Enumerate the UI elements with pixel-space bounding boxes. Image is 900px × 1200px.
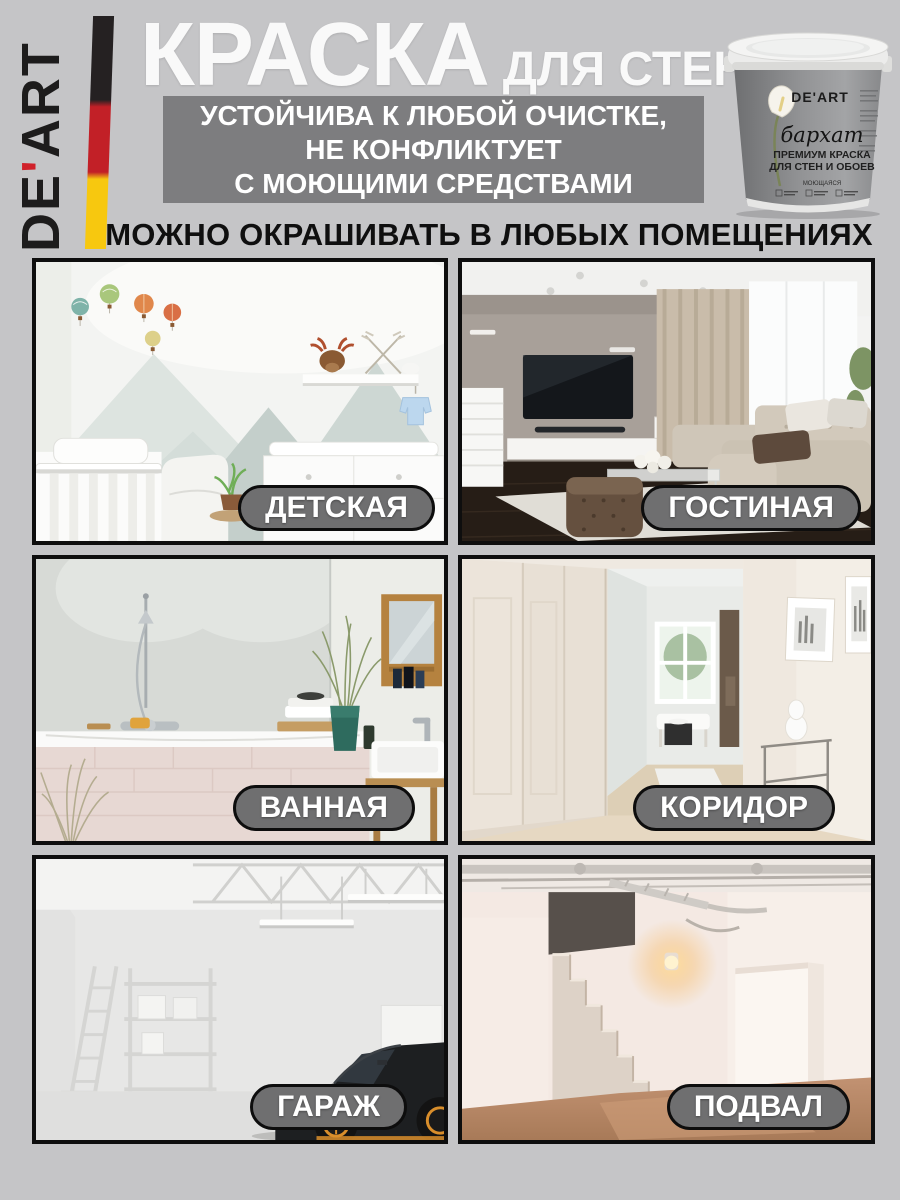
- section-heading: МОЖНО ОКРАШИВАТЬ В ЛЮБЫХ ПОМЕЩЕНИЯХ: [100, 217, 878, 253]
- room-label: ДЕТСКАЯ: [265, 491, 408, 525]
- room-label: КОРИДОР: [660, 791, 808, 825]
- room-label: ГОСТИНАЯ: [668, 491, 834, 525]
- room-photo-living-room: ГОСТИНАЯ: [458, 258, 875, 545]
- room-label: ГАРАЖ: [277, 1090, 380, 1124]
- accent-table: [665, 724, 693, 746]
- page-title: КРАСКА ДЛЯ СТЕН: [140, 10, 748, 100]
- room-label-pill: ГОСТИНАЯ: [641, 485, 861, 531]
- room-photo-nursery: ДЕТСКАЯ: [32, 258, 448, 545]
- room-photo-garage: ГАРАЖ: [32, 855, 448, 1144]
- stone-tray: [297, 692, 324, 700]
- white-shelf-unit: [462, 388, 503, 487]
- benefit-line: НЕ КОНФЛИКТУЕТ: [163, 133, 704, 167]
- wall-lamp: [470, 330, 496, 335]
- room-label-pill: КОРИДОР: [633, 785, 835, 831]
- german-flag-stripe: [85, 16, 114, 249]
- logo-part1: DE: [11, 173, 71, 252]
- sponge: [130, 718, 150, 729]
- room-label-pill: ДЕТСКАЯ: [238, 485, 435, 531]
- picture-frame: [845, 577, 871, 653]
- room-label: ВАННАЯ: [260, 791, 388, 825]
- mirror-cabinet: [381, 594, 442, 688]
- open-room-view: [608, 569, 744, 816]
- baby-crib: [36, 438, 162, 541]
- benefit-line: С МОЮЩИМИ СРЕДСТВАМИ: [163, 167, 704, 201]
- bucket-feature: МОЮЩАЯСЯ: [803, 181, 841, 187]
- armchair: [162, 455, 229, 541]
- benefit-box: УСТОЙЧИВА К ЛЮБОЙ ОЧИСТКЕ, НЕ КОНФЛИКТУЕ…: [163, 96, 704, 203]
- room-label-pill: ВАННАЯ: [233, 785, 415, 831]
- curtain: [36, 262, 71, 465]
- brown-pillow: [752, 430, 812, 465]
- room-photo-corridor: КОРИДОР: [458, 555, 875, 845]
- bucket-brand: DE'ART: [791, 89, 849, 105]
- title-main: КРАСКА: [140, 10, 489, 100]
- room-label: ПОДВАЛ: [694, 1090, 823, 1124]
- logo-apostrophe: ': [11, 158, 71, 173]
- logo-part2: ART: [11, 41, 71, 158]
- brand-logo: DE'ART: [10, 16, 72, 252]
- left-wall-doors: [462, 559, 608, 841]
- white-vase: [785, 700, 807, 740]
- stair-opening: [549, 892, 636, 954]
- bucket-type: ПРЕМИУМ КРАСКА: [773, 149, 871, 161]
- wall-sconce: [627, 919, 717, 1009]
- rooms-grid: ДЕТСКАЯ: [32, 258, 875, 1144]
- bucket-lid: [724, 33, 892, 72]
- window: [655, 622, 716, 704]
- room-label-pill: ГАРАЖ: [250, 1084, 407, 1130]
- benefit-line: УСТОЙЧИВА К ЛЮБОЙ ОЧИСТКЕ,: [163, 99, 704, 133]
- white-pillow: [785, 399, 834, 434]
- underglow: [317, 1136, 445, 1140]
- room-photo-basement: ПОДВАЛ: [458, 855, 875, 1144]
- picture-frame: [785, 597, 834, 661]
- side-mirror: [377, 1060, 387, 1065]
- paint-bucket: DE'ART бархат ПРЕМИУМ КРАСКА ДЛЯ СТЕН И …: [720, 18, 896, 220]
- room-photo-bathroom: ВАННАЯ: [32, 555, 448, 845]
- soap-dish: [87, 724, 111, 730]
- title-suffix: ДЛЯ СТЕН: [503, 42, 748, 97]
- room-label-pill: ПОДВАЛ: [667, 1084, 850, 1130]
- bird-decor: [402, 363, 420, 375]
- tufted-pouf: [566, 477, 643, 537]
- wall-lamp: [609, 347, 635, 352]
- bucket-application: ДЛЯ СТЕН И ОБОЕВ: [769, 161, 875, 173]
- poster: DE'ART КРАСКА ДЛЯ СТЕН УСТОЙЧИВА К ЛЮБОЙ…: [0, 0, 900, 1200]
- bucket-series: бархат: [780, 123, 863, 147]
